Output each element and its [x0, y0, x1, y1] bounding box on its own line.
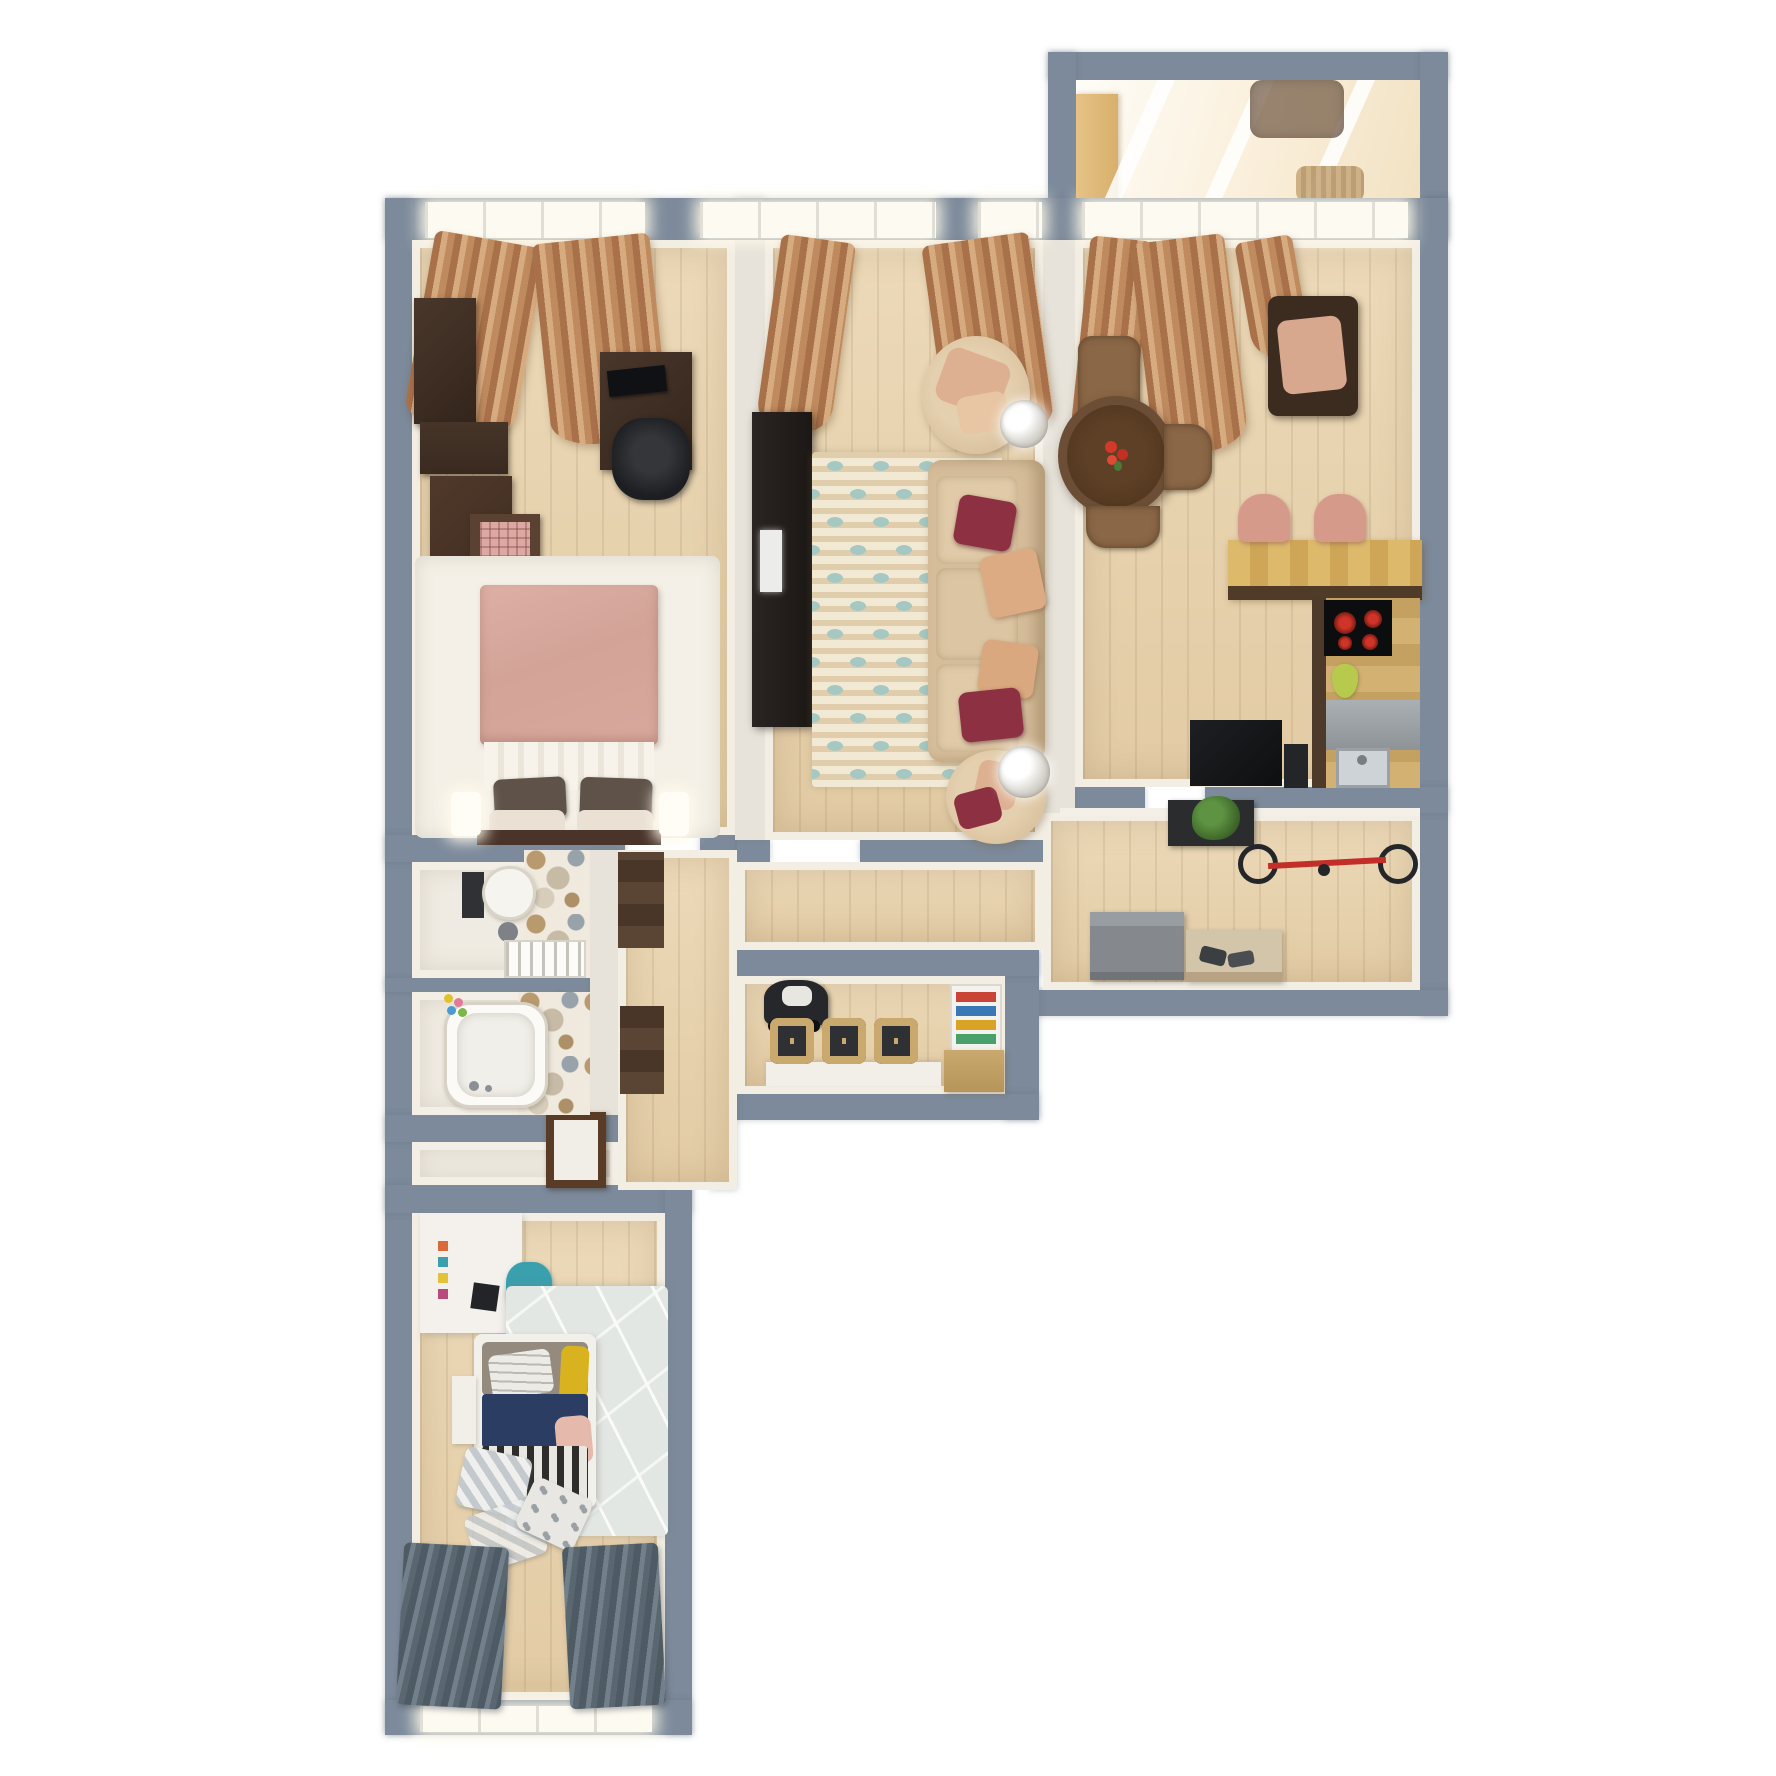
wall-right: [1420, 198, 1448, 1016]
burner-icon: [1334, 612, 1356, 634]
flower-red-icon: [1117, 449, 1128, 460]
utility-chair-2: [822, 1018, 866, 1064]
toy-icon: [458, 1008, 467, 1017]
utility-bookshelf: [950, 984, 1002, 1058]
kitchen-dishwasher: [1326, 700, 1420, 750]
wall-balcony-left: [1048, 52, 1076, 208]
utility-chair-1: [770, 1018, 814, 1064]
living-tv: [760, 530, 782, 592]
crystal-lamp-bottom: [998, 746, 1050, 798]
books-icon: [956, 1034, 996, 1044]
wall-wc-bath-divider: [385, 978, 618, 992]
floor-plan: [0, 0, 1776, 1776]
partition-living-kitchen: [1043, 240, 1075, 813]
window-bedroom1: [425, 202, 645, 238]
kitchen-dining-table: [1058, 396, 1174, 516]
faucet-icon: [485, 1085, 492, 1092]
bedroom1-wall-shelf: [420, 422, 508, 474]
flower-red-icon: [1105, 441, 1117, 453]
front-door: [546, 1112, 606, 1188]
books-icon: [956, 992, 996, 1002]
bar-stool-1: [1238, 494, 1290, 542]
window-kitchen: [1082, 202, 1408, 238]
stroller-blanket: [782, 986, 812, 1006]
wall-balcony-top: [1048, 52, 1448, 80]
wc-waste-bin: [498, 922, 518, 942]
kitchen-chair-bottom: [1086, 506, 1160, 548]
window-living-b: [978, 202, 1042, 238]
pillow-burgundy-2: [958, 687, 1025, 743]
bedroom1-headboard: [477, 830, 661, 845]
toy-icon: [447, 1006, 456, 1015]
kitchen-refrigerator: [1190, 720, 1282, 786]
hallway-shoe-cabinet: [1090, 912, 1184, 980]
curtain-bedroom2-right: [562, 1543, 666, 1710]
pillow-burgundy-1: [952, 493, 1018, 552]
wc-radiator: [504, 940, 586, 978]
bath-toys: [444, 994, 474, 1020]
books-icon: [956, 1020, 996, 1030]
burner-icon: [1364, 610, 1382, 628]
partition-wc-corridor: [590, 850, 618, 1115]
flower-leaf-icon: [1114, 461, 1122, 471]
toilet-tank: [462, 872, 484, 918]
books-icon: [956, 1006, 996, 1016]
kitchen-window-armchair: [1268, 296, 1358, 416]
wall-living-bottom-a: [737, 840, 770, 862]
armchair-cushion: [1276, 315, 1347, 395]
bedroom1-wardrobe: [414, 298, 476, 424]
bedroom1-lamp-right: [659, 792, 689, 836]
toilet-bowl: [482, 866, 536, 920]
art-supply-icon: [438, 1273, 448, 1283]
bedroom2-desk-item: [470, 1282, 499, 1311]
wall-utility-top: [737, 950, 1039, 976]
utility-wood-desk: [944, 1050, 1004, 1092]
shoes-icon: [1198, 945, 1227, 967]
window-bedroom2: [420, 1706, 652, 1732]
curtain-bedroom2-left: [396, 1542, 509, 1709]
corridor-wardrobe-upper: [618, 852, 664, 948]
kitchen-chair-right: [1164, 424, 1212, 490]
art-supply-icon: [438, 1241, 448, 1251]
wall-living-bottom-b: [860, 840, 1043, 862]
bedroom1-lamp-left: [451, 792, 481, 836]
wall-hallway-bottom: [1005, 990, 1448, 1016]
bedroom1-office-chair: [612, 418, 690, 500]
bed2-striped-pillow: [487, 1348, 555, 1400]
living-tv-console: [752, 412, 812, 727]
art-supply-icon: [438, 1289, 448, 1299]
balcony-interior: [1076, 80, 1420, 198]
bike-pedal-icon: [1318, 864, 1330, 876]
cooktop: [1324, 600, 1392, 656]
wall-left: [385, 198, 413, 1735]
utility-white-desk-strip: [766, 1062, 941, 1086]
burner-icon: [1338, 636, 1352, 650]
bar-stool-2: [1314, 494, 1366, 542]
toy-icon: [444, 994, 453, 1003]
armchair-pillow-burgundy: [952, 785, 1004, 831]
art-supply-icon: [438, 1257, 448, 1267]
faucet-icon: [469, 1081, 479, 1091]
toy-icon: [454, 998, 463, 1007]
hallway-bench: [1186, 930, 1282, 982]
balcony-lounge-chair: [1250, 80, 1344, 138]
shoes-icon: [1227, 950, 1255, 968]
bedroom1-bed-duvet: [480, 585, 658, 745]
hallway-bicycle: [1238, 838, 1424, 890]
utility-chair-3: [874, 1018, 918, 1064]
bedroom2-bedside-shelf: [452, 1376, 476, 1444]
front-door-leaf: [554, 1120, 598, 1180]
faucet-icon: [1357, 755, 1367, 765]
pillow-blush-1: [978, 547, 1048, 620]
bike-wheel-icon: [1378, 844, 1418, 884]
corridor-wardrobe-lower: [620, 1006, 664, 1094]
crystal-lamp-top: [1000, 400, 1048, 448]
window-living-a: [700, 202, 936, 238]
plant-icon: [1192, 796, 1240, 840]
kitchen-sink: [1336, 748, 1390, 788]
burner-icon: [1362, 634, 1378, 650]
wall-bedroom2-right: [665, 1185, 692, 1735]
balcony-wicker-basket: [1296, 166, 1364, 198]
wall-utility-bottom: [737, 1094, 1039, 1120]
kitchen-waste-bin: [1284, 744, 1308, 788]
floor-corridor-horizontal: [737, 862, 1043, 950]
